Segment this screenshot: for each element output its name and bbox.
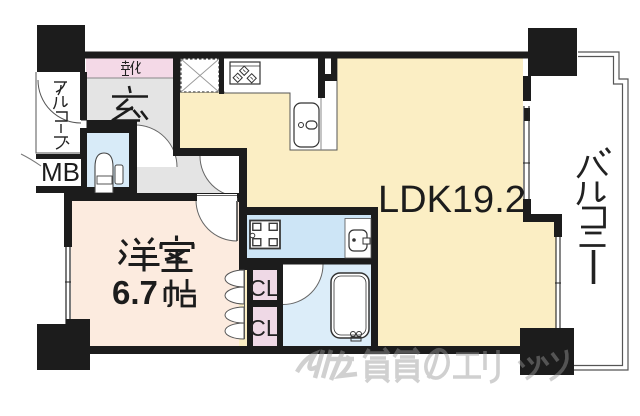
svg-text:CL: CL xyxy=(249,275,279,301)
svg-text:CL: CL xyxy=(249,315,279,341)
svg-text:LDK19.2: LDK19.2 xyxy=(378,179,526,221)
svg-text:MB: MB xyxy=(41,157,80,187)
svg-text:6.7: 6.7 xyxy=(112,274,158,311)
